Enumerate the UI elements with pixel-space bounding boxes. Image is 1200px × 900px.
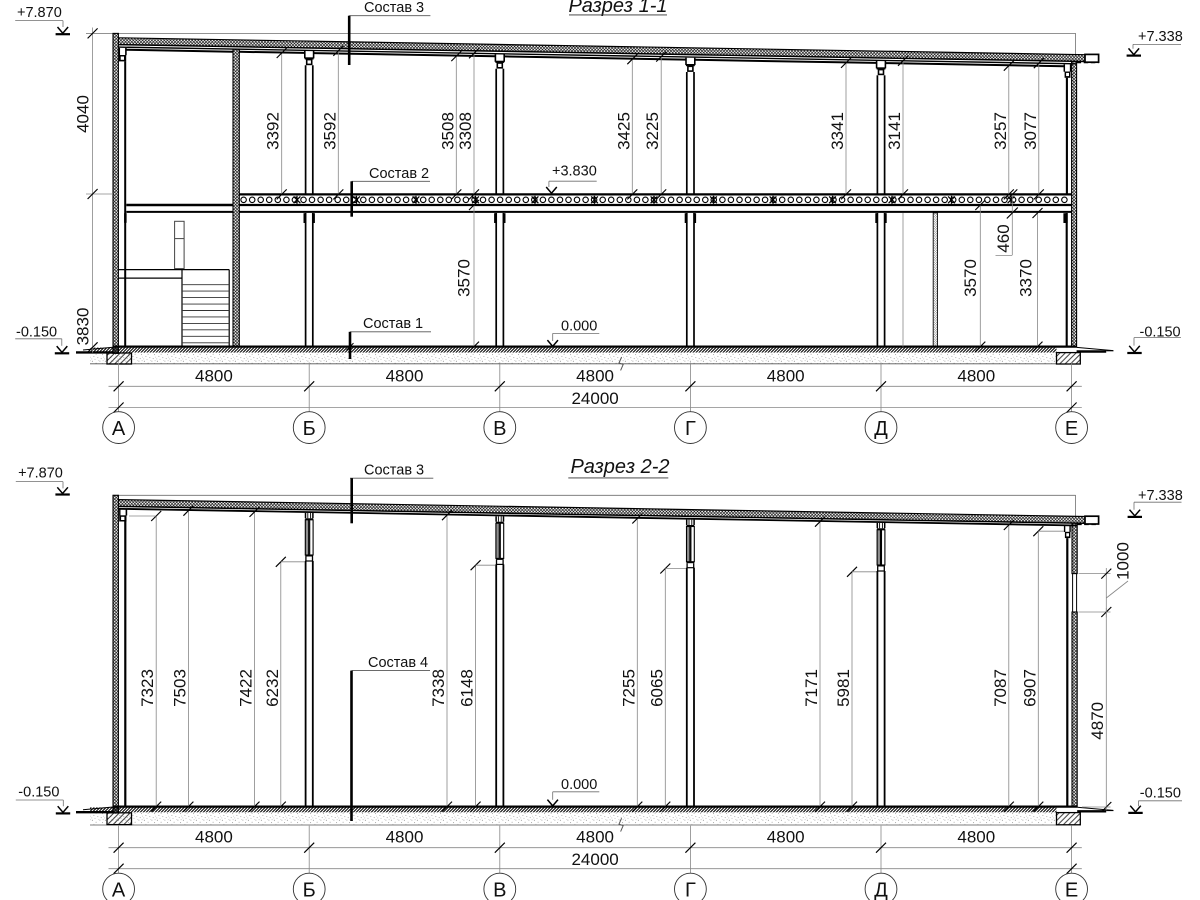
svg-text:4800: 4800	[386, 828, 424, 847]
svg-text:Д: Д	[874, 879, 888, 900]
svg-text:6232: 6232	[263, 669, 282, 707]
svg-text:Е: Е	[1065, 879, 1078, 900]
svg-text:4800: 4800	[767, 367, 805, 386]
svg-text:7087: 7087	[991, 669, 1010, 707]
svg-text:-0.150: -0.150	[1140, 786, 1181, 802]
svg-text:4800: 4800	[576, 367, 614, 386]
svg-text:4800: 4800	[957, 367, 995, 386]
svg-text:Б: Б	[303, 418, 316, 440]
svg-text:3077: 3077	[1021, 112, 1040, 150]
svg-text:6907: 6907	[1020, 669, 1039, 707]
svg-text:4800: 4800	[195, 367, 233, 386]
svg-text:4040: 4040	[74, 95, 93, 133]
svg-text:3225: 3225	[643, 112, 662, 150]
svg-text:+7.870: +7.870	[18, 465, 63, 481]
svg-text:Состав 3: Состав 3	[364, 0, 424, 16]
svg-text:3592: 3592	[320, 112, 339, 150]
svg-text:+7.338: +7.338	[1138, 29, 1183, 45]
svg-text:7323: 7323	[138, 669, 157, 707]
svg-text:7171: 7171	[802, 669, 821, 707]
svg-text:7255: 7255	[619, 669, 638, 707]
svg-text:5981: 5981	[834, 669, 853, 707]
svg-text:3508: 3508	[438, 112, 457, 150]
svg-text:7422: 7422	[237, 669, 256, 707]
svg-text:Разрез 2-2: Разрез 2-2	[570, 456, 669, 478]
svg-text:4800: 4800	[195, 828, 233, 847]
svg-text:24000: 24000	[571, 850, 618, 869]
svg-text:В: В	[493, 418, 506, 440]
svg-text:3830: 3830	[74, 308, 93, 346]
svg-text:3370: 3370	[1017, 259, 1036, 297]
svg-text:+7.870: +7.870	[17, 5, 62, 21]
svg-text:4800: 4800	[767, 828, 805, 847]
svg-text:4800: 4800	[576, 828, 614, 847]
svg-text:460: 460	[994, 224, 1013, 252]
svg-text:1000: 1000	[1113, 542, 1132, 580]
svg-text:4870: 4870	[1088, 702, 1107, 740]
svg-text:3570: 3570	[961, 259, 980, 297]
svg-text:6065: 6065	[647, 669, 666, 707]
svg-text:3425: 3425	[614, 112, 633, 150]
svg-text:3570: 3570	[455, 259, 474, 297]
svg-text:0.000: 0.000	[561, 319, 597, 335]
svg-text:24000: 24000	[571, 389, 618, 408]
svg-text:В: В	[493, 879, 506, 900]
svg-text:0.000: 0.000	[561, 777, 597, 793]
svg-text:Состав 2: Состав 2	[369, 166, 429, 182]
svg-text:-0.150: -0.150	[18, 784, 59, 800]
svg-text:+3.830: +3.830	[552, 164, 597, 180]
svg-text:3141: 3141	[885, 112, 904, 150]
svg-text:Г: Г	[685, 879, 696, 900]
svg-text:+7.338: +7.338	[1138, 488, 1183, 504]
svg-text:А: А	[112, 879, 126, 900]
svg-text:4800: 4800	[957, 828, 995, 847]
svg-text:Состав 3: Состав 3	[364, 463, 424, 479]
svg-text:3392: 3392	[264, 112, 283, 150]
svg-text:Е: Е	[1065, 418, 1078, 440]
svg-text:Состав 1: Состав 1	[363, 316, 423, 332]
svg-text:3341: 3341	[828, 112, 847, 150]
svg-text:Г: Г	[685, 418, 696, 440]
svg-text:Б: Б	[303, 879, 316, 900]
svg-text:7503: 7503	[170, 669, 189, 707]
svg-text:А: А	[112, 418, 126, 440]
svg-text:6148: 6148	[458, 669, 477, 707]
svg-text:Разрез 1-1: Разрез 1-1	[568, 0, 667, 17]
svg-text:Д: Д	[874, 418, 888, 440]
svg-text:7338: 7338	[429, 669, 448, 707]
svg-text:3308: 3308	[456, 112, 475, 150]
svg-text:Состав 4: Состав 4	[368, 655, 428, 671]
svg-text:-0.150: -0.150	[16, 324, 57, 340]
svg-text:3257: 3257	[991, 112, 1010, 150]
svg-text:4800: 4800	[386, 367, 424, 386]
